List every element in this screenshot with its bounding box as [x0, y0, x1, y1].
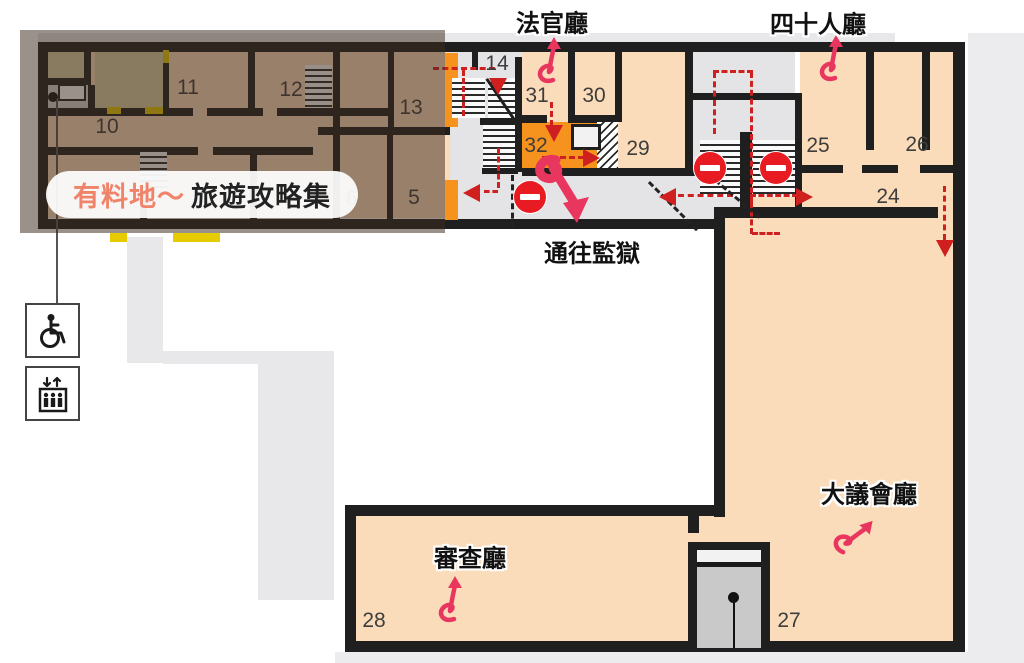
- balcony-column-dot: [728, 592, 739, 603]
- watermark: 有料地～ 旅遊攻略集: [46, 171, 358, 218]
- route-dash: [752, 232, 780, 235]
- room-label-27: 27: [777, 609, 800, 633]
- watermark-title: 旅遊攻略集: [191, 175, 331, 214]
- elevator-icon: [33, 374, 73, 414]
- room-label-14: 14: [485, 52, 508, 76]
- route-arrow-icon: [489, 78, 507, 95]
- wall: [920, 165, 953, 173]
- route-arrow-icon: [936, 240, 954, 257]
- hall-label-prison: 通往監獄: [544, 234, 640, 269]
- wall: [953, 42, 965, 652]
- exterior-ground-bottom: [335, 652, 1024, 663]
- wall: [345, 505, 714, 516]
- floor-scrutiny-hall: [356, 516, 725, 641]
- route-arrow-icon: [545, 125, 563, 142]
- route-dash: [497, 148, 500, 188]
- no-entry-bar: [766, 165, 786, 171]
- balcony-frame-left: [688, 542, 697, 648]
- entrance-marker: [110, 233, 127, 242]
- curl-arrow-icon: [818, 34, 848, 82]
- hall-label-judges: 法官廳: [516, 4, 588, 39]
- room-label-31: 31: [525, 84, 548, 108]
- balcony-frame-top: [688, 542, 770, 550]
- wall: [800, 165, 843, 173]
- elevator-sign: [25, 366, 80, 421]
- wall: [866, 52, 874, 150]
- prison-route-arrow-icon: [526, 154, 602, 232]
- wall: [482, 168, 518, 174]
- wall: [515, 57, 522, 172]
- wall: [615, 52, 622, 122]
- wheelchair-sign: [25, 303, 80, 358]
- wall: [568, 52, 575, 115]
- watermark-brand: 有料地～: [73, 175, 185, 214]
- wall: [345, 505, 356, 652]
- staircase: [452, 78, 485, 118]
- wall: [522, 115, 547, 123]
- route-arrow-icon: [796, 188, 813, 206]
- wall: [688, 505, 699, 533]
- route-arrow-icon: [463, 184, 480, 202]
- no-entry-icon: [694, 152, 726, 184]
- room-label-26: 26: [905, 133, 928, 157]
- no-entry-icon: [760, 152, 792, 184]
- route-dash: [484, 190, 498, 193]
- exterior-ground-right: [968, 33, 1024, 655]
- hall-label-scrutiny: 審查廳: [434, 539, 506, 574]
- route-dash: [550, 102, 553, 126]
- room-label-30: 30: [582, 84, 605, 108]
- stair-landing: [571, 124, 601, 150]
- curl-arrow-icon: [437, 575, 467, 623]
- room-label-24: 24: [876, 185, 899, 209]
- guide-dash: [511, 175, 514, 228]
- route-dash: [943, 186, 946, 240]
- route-arrow-icon: [659, 188, 676, 206]
- route-dash: [713, 72, 716, 134]
- route-dash: [750, 72, 753, 202]
- courtyard-path-lower: [258, 351, 334, 600]
- no-entry-bar: [700, 165, 720, 171]
- hall-label-forty: 四十人廳: [770, 5, 866, 40]
- wall: [714, 207, 725, 517]
- courtyard-path-horizontal: [163, 351, 258, 364]
- route-dash: [678, 194, 733, 197]
- entrance-marker: [173, 233, 220, 242]
- courtyard-path-vertical: [127, 237, 163, 363]
- room-label-28: 28: [362, 609, 385, 633]
- route-dash: [462, 70, 465, 116]
- wheelchair-icon: [33, 311, 73, 351]
- wall: [693, 93, 800, 100]
- floor-plan-map: 10 11 12 13 6 5 14 31 30 32 29 25 26 24 …: [0, 0, 1024, 663]
- balcony-frame-right: [761, 542, 770, 648]
- wall: [345, 641, 965, 652]
- floor-orange-passage-lower: [445, 180, 458, 220]
- balcony-column-line: [733, 600, 735, 648]
- wall: [685, 52, 693, 176]
- curl-arrow-icon: [536, 36, 566, 84]
- hall-label-council: 大議會廳: [821, 475, 917, 510]
- route-dash: [750, 194, 798, 197]
- wall: [862, 165, 898, 173]
- room-label-25: 25: [806, 134, 829, 158]
- balcony-window-band: [697, 550, 761, 567]
- route-dash: [750, 202, 753, 234]
- room-label-29: 29: [626, 137, 649, 161]
- route-dash: [713, 70, 753, 73]
